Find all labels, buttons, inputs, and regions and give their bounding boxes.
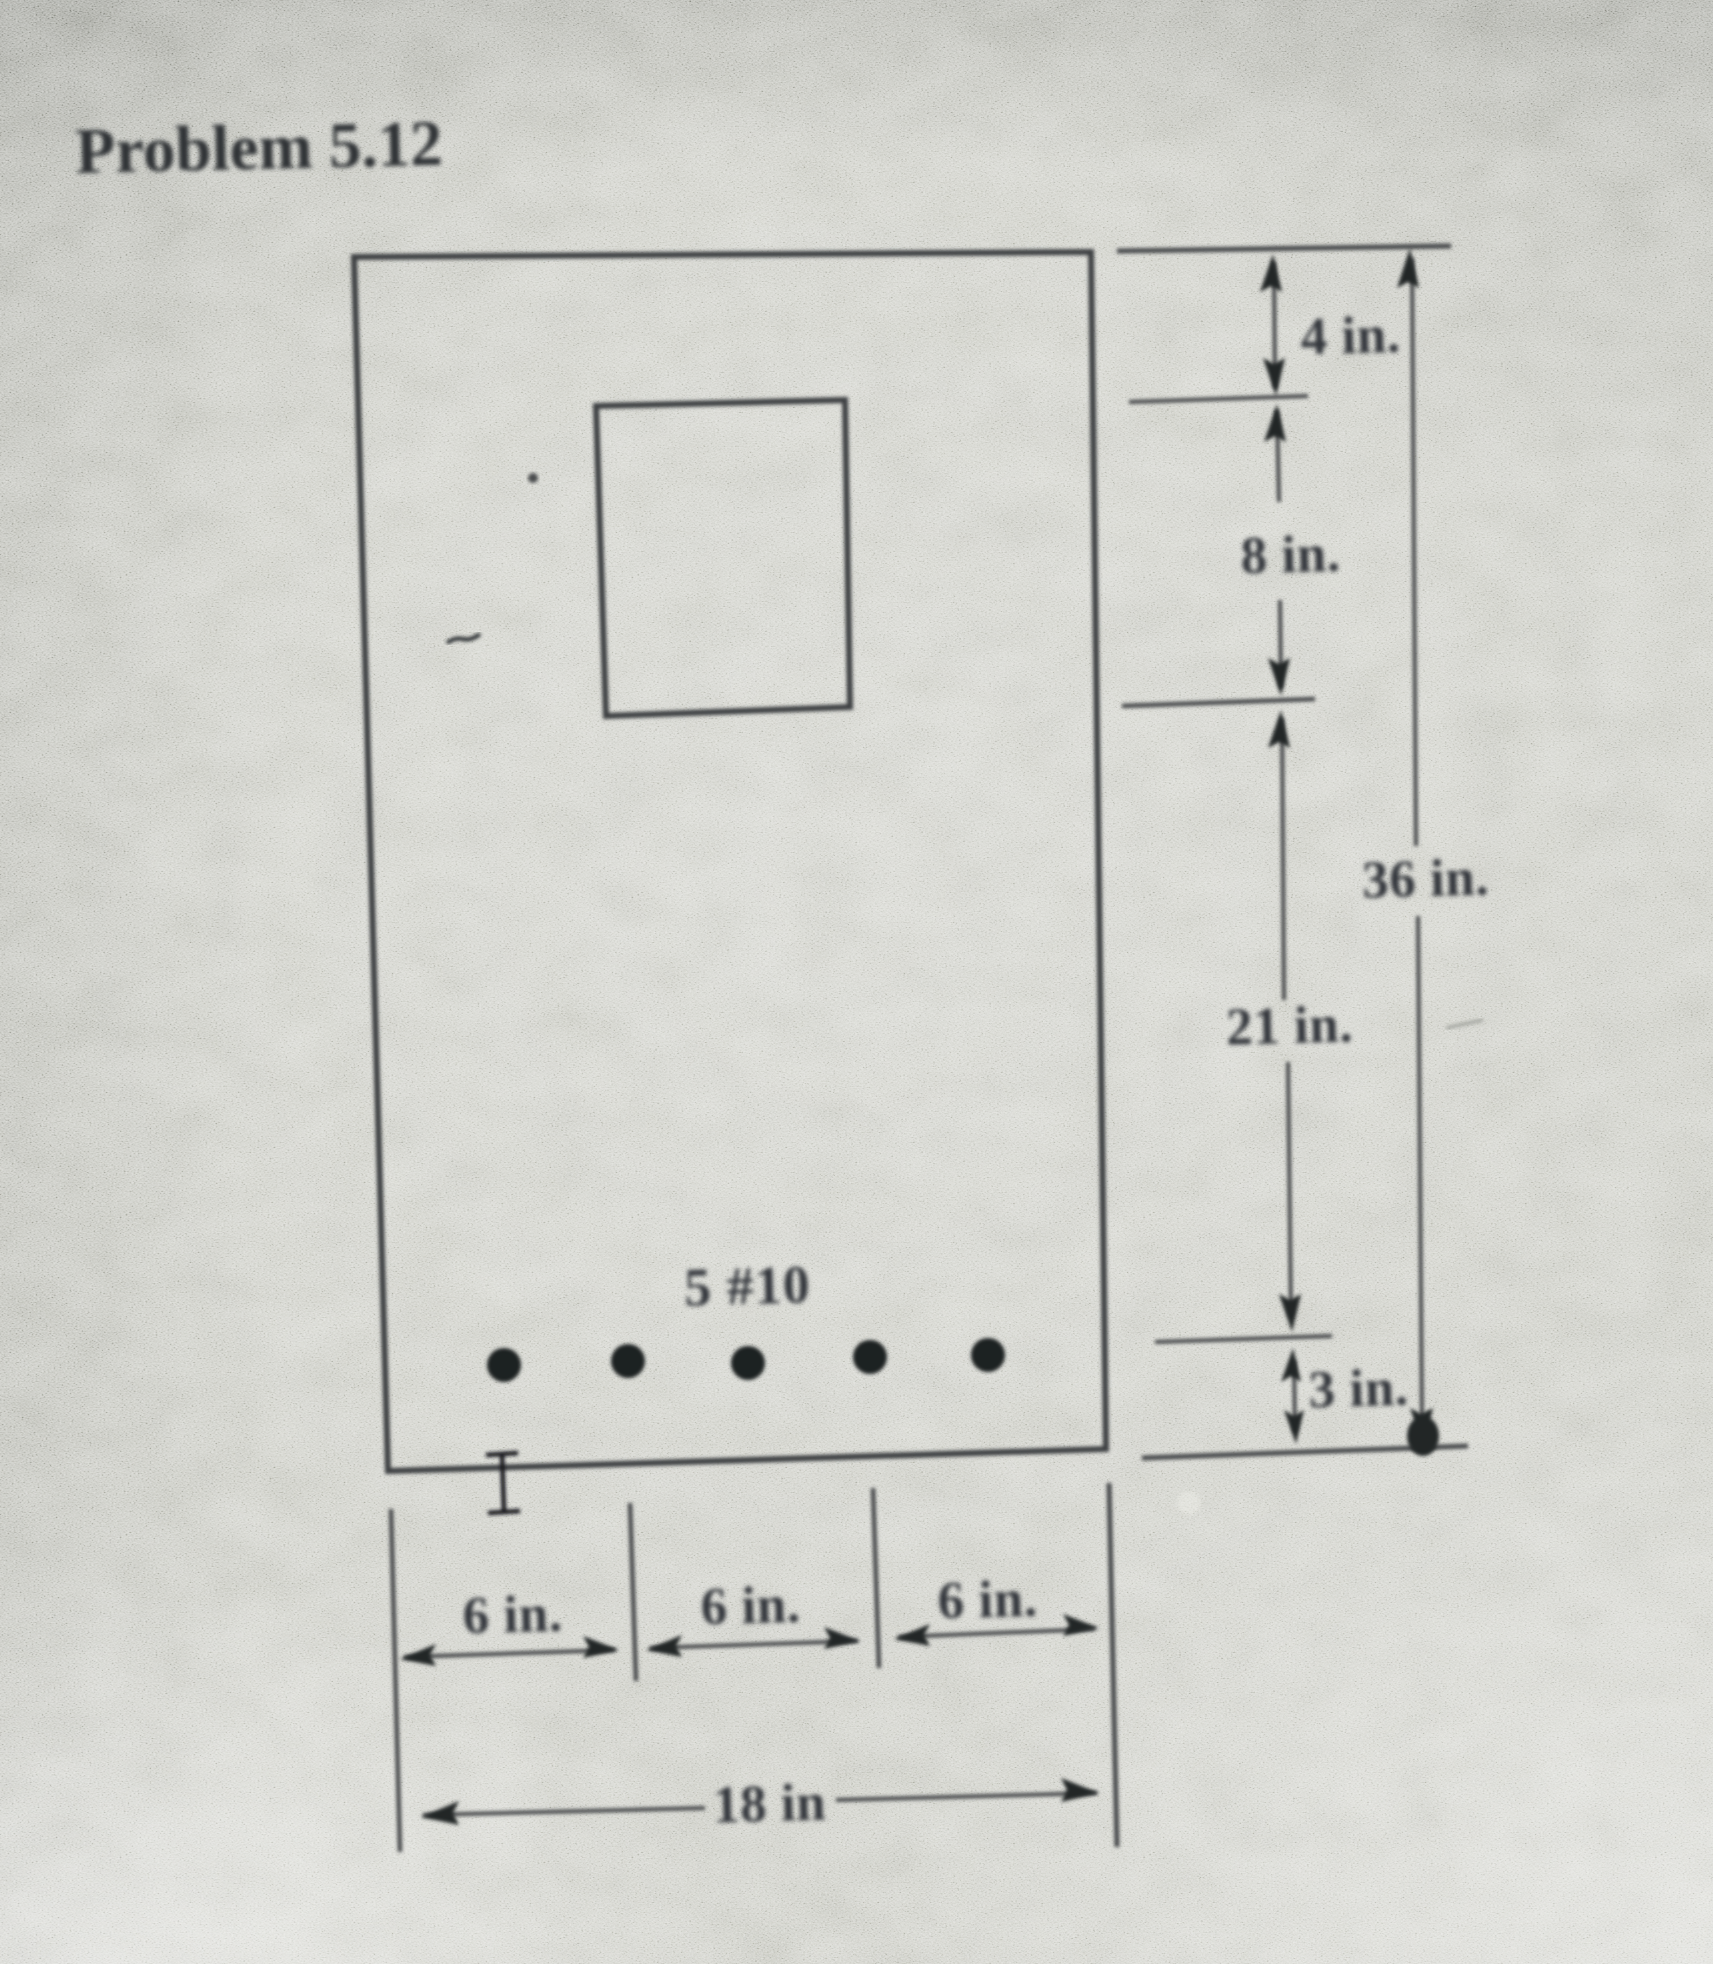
- svg-text:5 #10: 5 #10: [683, 1254, 811, 1317]
- svg-text:6 in.: 6 in.: [937, 1570, 1038, 1631]
- svg-text:3 in.: 3 in.: [1308, 1359, 1409, 1420]
- svg-text:18 in: 18 in: [712, 1774, 826, 1835]
- svg-text:21 in.: 21 in.: [1225, 995, 1353, 1056]
- svg-text:36 in.: 36 in.: [1361, 848, 1489, 909]
- svg-text:6 in.: 6 in.: [462, 1585, 563, 1646]
- svg-text:8 in.: 8 in.: [1240, 525, 1341, 586]
- svg-text:Problem 5.12: Problem 5.12: [75, 108, 444, 188]
- svg-text:6 in.: 6 in.: [700, 1576, 801, 1637]
- svg-text:4 in.: 4 in.: [1300, 306, 1401, 367]
